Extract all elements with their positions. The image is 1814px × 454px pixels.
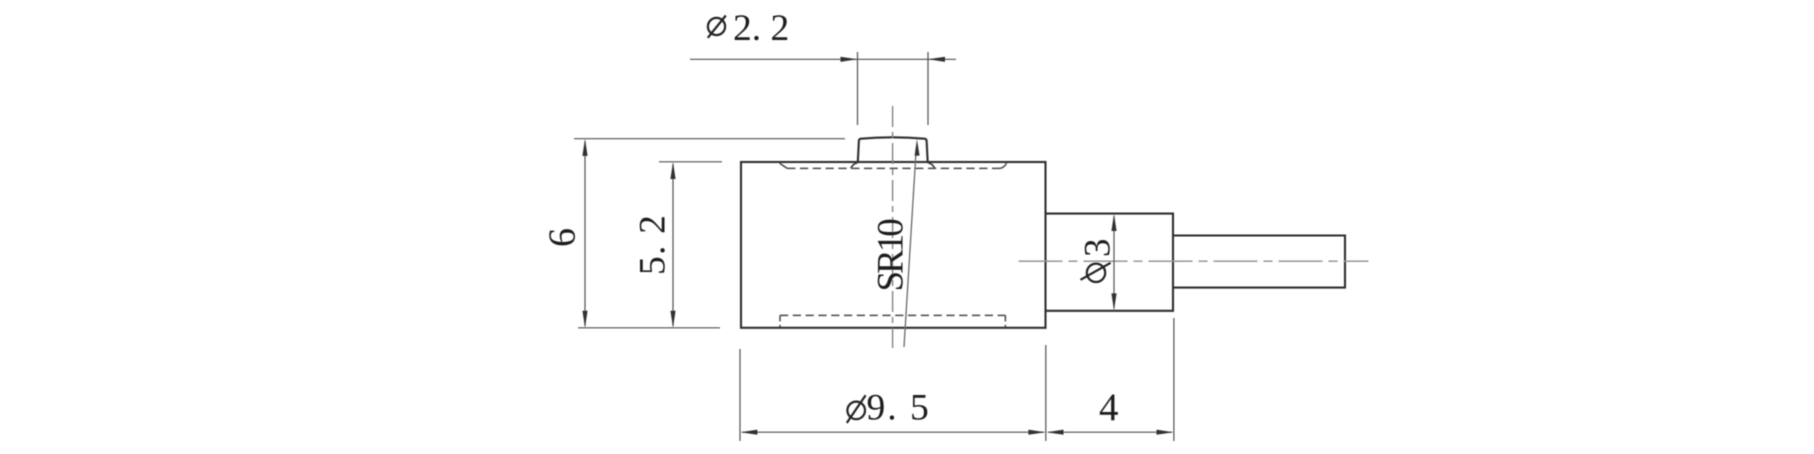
svg-text:9. 5: 9. 5: [867, 388, 931, 429]
svg-text:SR10: SR10: [871, 219, 912, 292]
svg-text:5. 2: 5. 2: [633, 214, 674, 275]
svg-text:4: 4: [1099, 386, 1119, 429]
svg-text:6: 6: [542, 228, 584, 247]
svg-text:3: 3: [1078, 239, 1119, 258]
svg-text:2. 2: 2. 2: [733, 8, 789, 49]
